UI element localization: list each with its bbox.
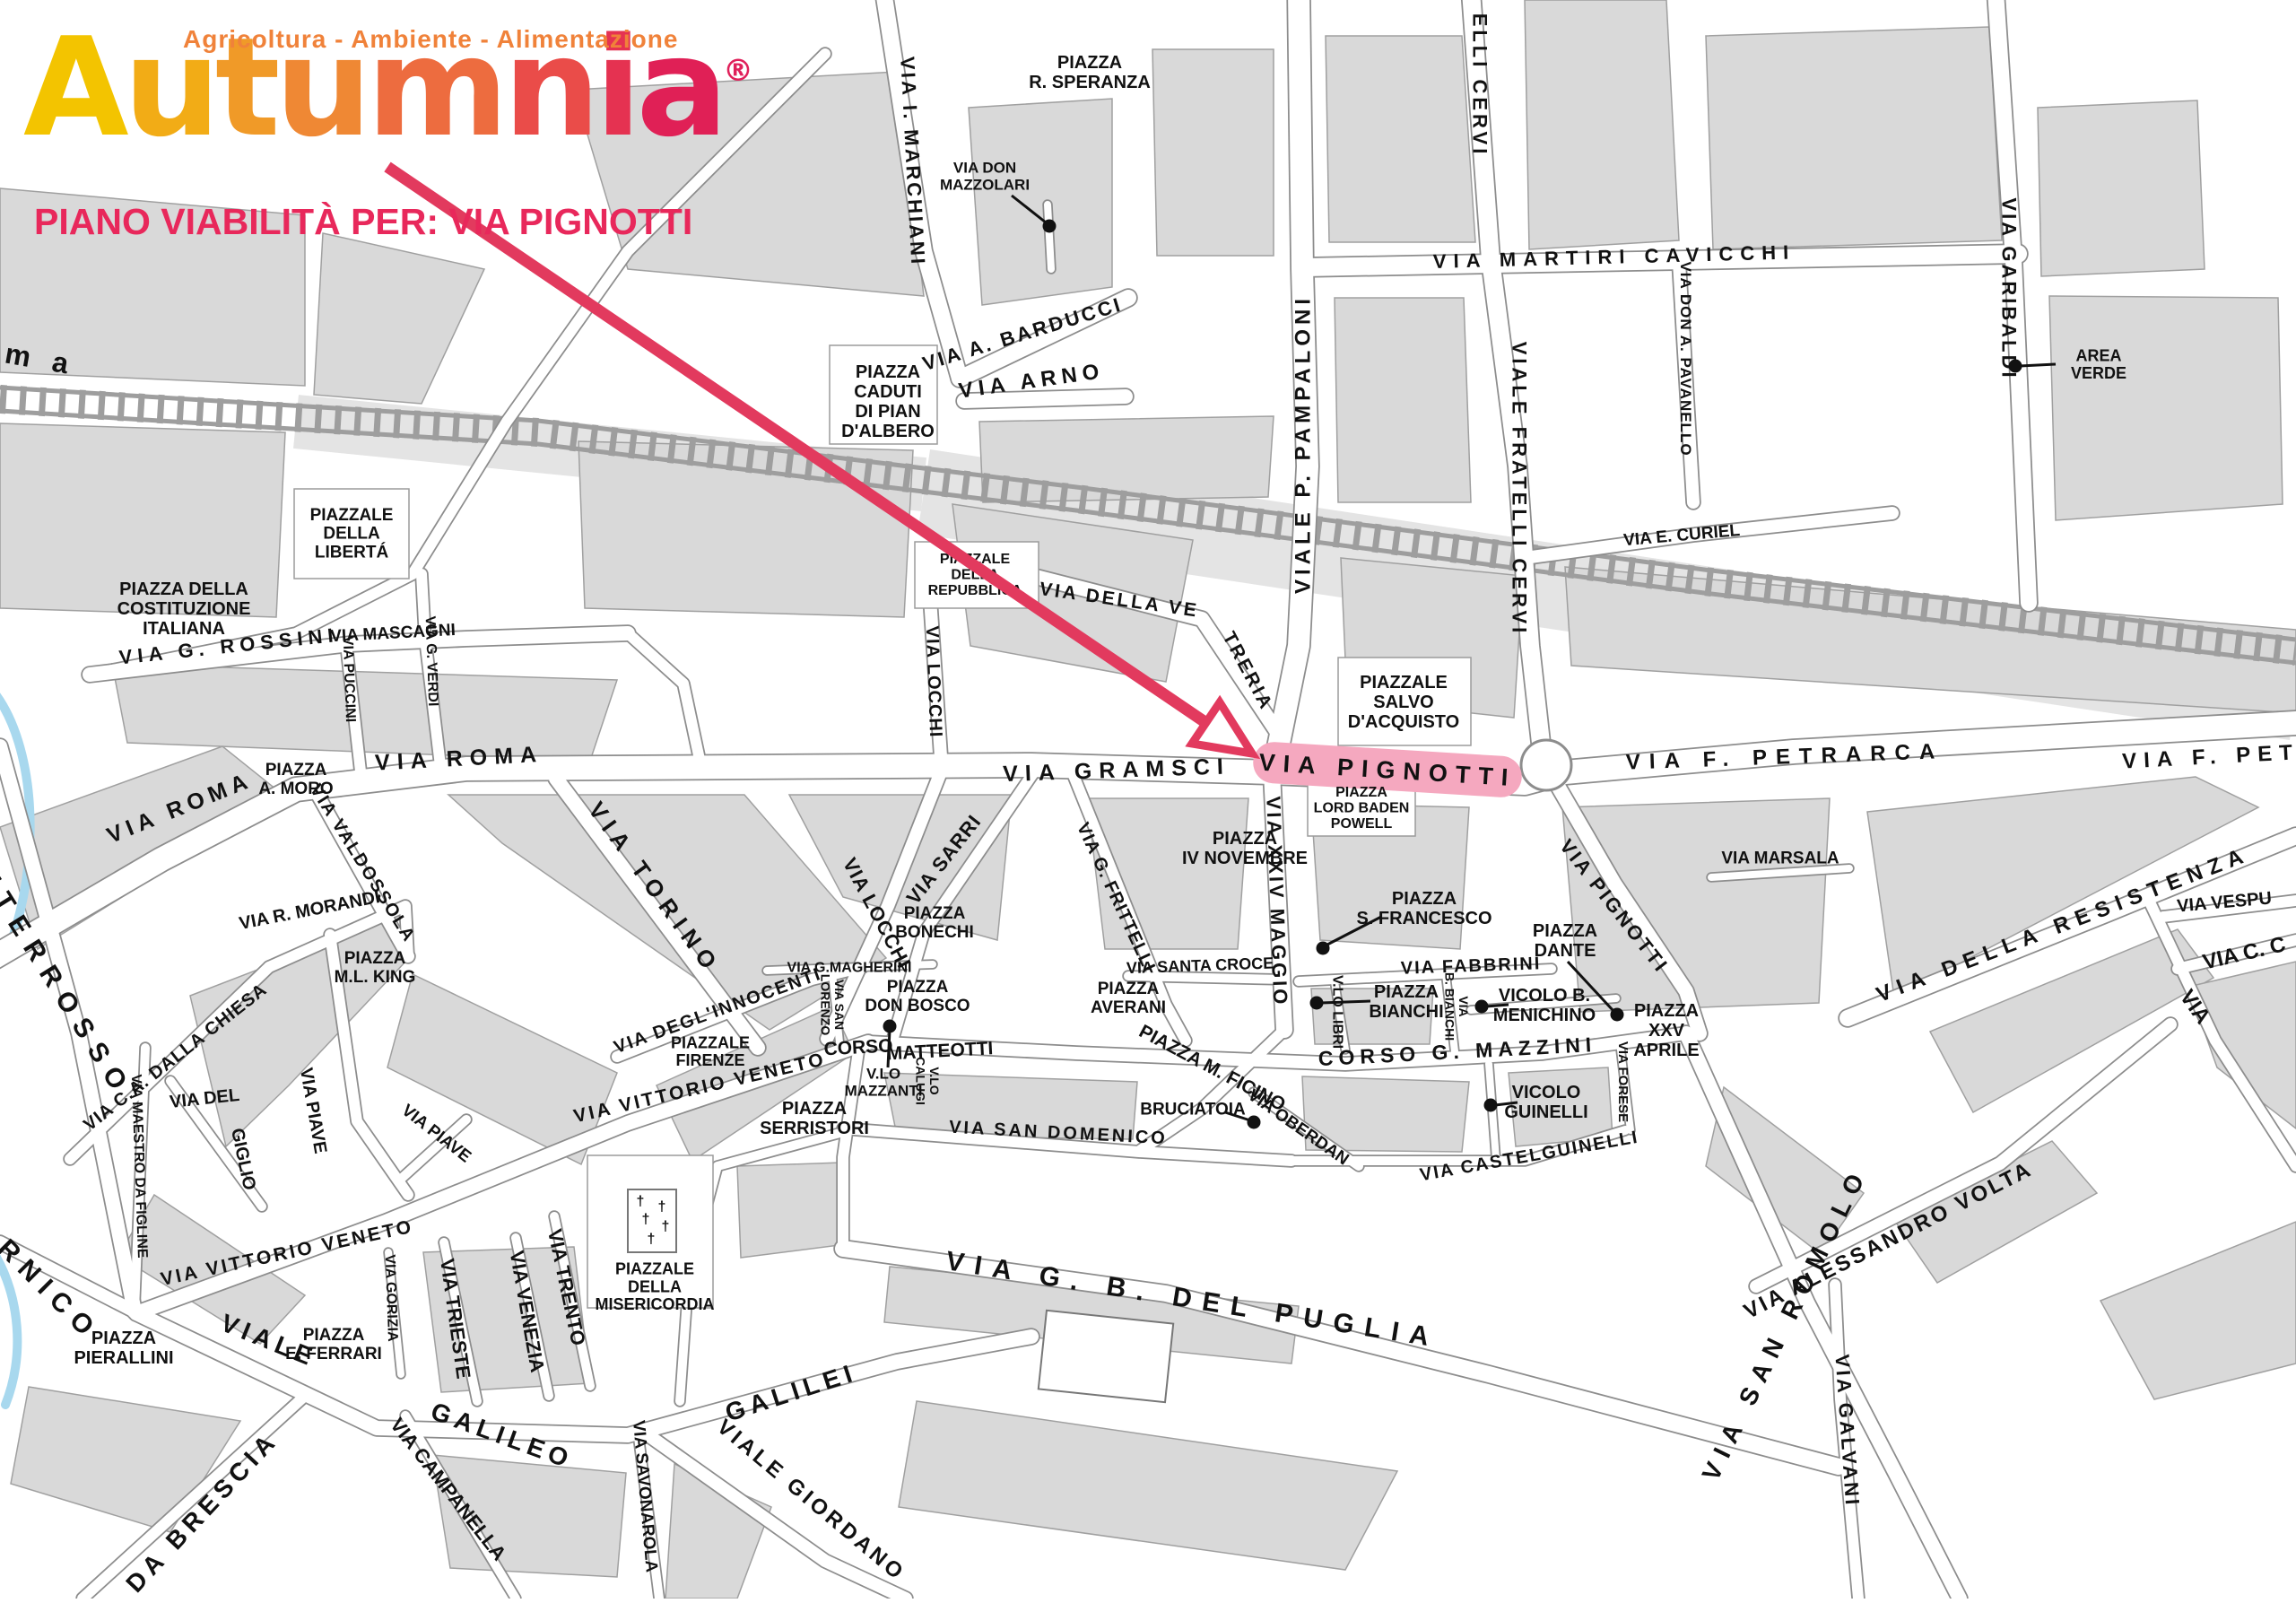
label-piazzale-firenze: PIAZZALEFIRENZE	[671, 1033, 750, 1069]
label-piazza-don-bosco: PIAZZADON BOSCO	[865, 978, 970, 1015]
label-text: VIALE P. PAMPALONI	[1291, 294, 1315, 594]
label-via-marsala: VIA MARSALA	[1721, 849, 1839, 868]
label-text: MATTEOTTI	[886, 1038, 994, 1064]
label-text: BRUCIATOIA	[1140, 1101, 1246, 1119]
logo-letter: A	[23, 8, 124, 167]
city-block	[2188, 962, 2296, 1128]
road	[1048, 205, 1051, 269]
label-text: PIAZZALEFIRENZE	[671, 1033, 750, 1069]
label-viale-p-pampaloni: VIALE P. PAMPALONI	[1291, 294, 1315, 594]
label-text: VIA G. VERDI	[422, 615, 441, 706]
label-via-piave: VIA PIAVE	[296, 1067, 330, 1155]
city-block	[1152, 49, 1274, 256]
label-via-don-mazzolari: VIA DONMAZZOLARI	[940, 160, 1030, 194]
label-piazza-m-l-king: PIAZZAM.L. KING	[335, 949, 416, 987]
label-corso: CORSO	[823, 1035, 893, 1059]
label-via-forese: VIA FORESE	[1615, 1041, 1631, 1122]
roundabout	[1521, 740, 1571, 790]
poi-dot	[1317, 942, 1330, 955]
page-title: PIANO VIABILITÀ PER: VIA PIGNOTTI	[34, 201, 692, 243]
cemetery-cross-icon: †	[648, 1232, 656, 1247]
label-text: PIAZZABONECHI	[895, 904, 974, 942]
label-text: VIA F. PET	[2122, 740, 2296, 773]
label-text: VIA PIAVE	[296, 1067, 330, 1155]
registered-mark: ®	[723, 53, 753, 89]
poi-dot	[2009, 360, 2022, 373]
label-bruciatoia: BRUCIATOIA	[1140, 1101, 1246, 1119]
label-text: VIA DON A. PAVANELLO	[1677, 261, 1694, 456]
label-matteotti: MATTEOTTI	[886, 1038, 994, 1064]
label-viale-fratelli-cervi: VIALE FRATELLI CERVI	[1508, 342, 1530, 637]
label-via-don-a-pavanello: VIA DON A. PAVANELLO	[1677, 261, 1694, 456]
label-v-lo-libri: V.LO LIBRI	[1329, 975, 1344, 1049]
label-via-locchi: VIA LOCCHI	[922, 625, 945, 738]
label-text: PIAZZADON BOSCO	[865, 978, 970, 1015]
city-block	[737, 1163, 841, 1258]
city-block	[2049, 296, 2283, 520]
label-text: VIA GORIZIA	[382, 1254, 400, 1342]
label-text: VIA GALVANI	[1831, 1354, 1864, 1508]
label-via-f-petrarca: VIA F. PETRARCA	[1625, 739, 1944, 774]
poi-leader	[1321, 1001, 1370, 1003]
city-block	[969, 99, 1112, 305]
city-block	[2038, 100, 2205, 276]
label-text: VIA PUCCINI	[340, 636, 358, 723]
poi-leader	[888, 1030, 890, 1067]
cemetery-cross-icon: †	[658, 1199, 666, 1215]
label-via-e-curiel: VIA E. CURIEL	[1622, 521, 1741, 550]
label-piazza-averani: PIAZZAAVERANI	[1091, 980, 1166, 1017]
poi-dot	[1611, 1008, 1624, 1022]
city-block	[2100, 1222, 2296, 1399]
label-via-b-bianchi: VIAB. BIANCHI	[1442, 972, 1470, 1041]
label-text: PIAZZAR. SPERANZA	[1029, 53, 1151, 92]
cemetery-cross-icon: †	[662, 1219, 670, 1234]
poi-leader	[1486, 1005, 1509, 1006]
label-text: VIA DONMAZZOLARI	[940, 160, 1030, 194]
city-block	[899, 1401, 1397, 1570]
label-text: PIAZZAAVERANI	[1091, 980, 1166, 1017]
label-text: VIA FORESE	[1615, 1041, 1631, 1122]
label-via-g-verdi: VIA G. VERDI	[422, 615, 441, 706]
label-text: PIAZZABIANCHI	[1369, 982, 1443, 1022]
poi-dot	[1043, 220, 1057, 233]
label-via-puccini: VIA PUCCINI	[340, 636, 358, 723]
label-text: GALILEI	[722, 1358, 861, 1427]
label-text: V.LO LIBRI	[1329, 975, 1344, 1049]
cemetery-cross-icon: †	[642, 1212, 650, 1227]
label-via-f-pet: VIA F. PET	[2122, 740, 2296, 773]
label-piazza-bianchi: PIAZZABIANCHI	[1369, 982, 1443, 1022]
cemetery-cross-icon: †	[637, 1194, 645, 1209]
pointer-arrow-head	[1192, 702, 1252, 754]
poi-dot	[1484, 1099, 1498, 1112]
city-block	[314, 233, 484, 404]
label-text: VIAB. BIANCHI	[1442, 972, 1470, 1041]
label-elli-cervi: ELLI CERVI	[1468, 13, 1491, 158]
label-text: VIA PIAVE	[398, 1101, 474, 1166]
poi-leader	[2020, 364, 2056, 366]
label-text: VIA GARIBALDI	[1997, 197, 2020, 379]
label-via-gorizia: VIA GORIZIA	[382, 1254, 400, 1342]
label-via-piave: VIA PIAVE	[398, 1101, 474, 1166]
label-text: ELLI CERVI	[1468, 13, 1491, 158]
poi-dot	[1475, 1000, 1489, 1014]
label-text: AREAVERDE	[2071, 346, 2126, 382]
label-piazza-r-speranza: PIAZZAR. SPERANZA	[1029, 53, 1151, 92]
building-footprint	[1039, 1311, 1173, 1402]
label-piazza-dante: PIAZZADANTE	[1533, 921, 1597, 961]
label-text: VIALE FRATELLI CERVI	[1508, 342, 1530, 637]
label-piazza-della-costituzione-italiana: PIAZZA DELLACOSTITUZIONEITALIANA	[117, 579, 251, 639]
label-text: PIAZZADANTE	[1533, 921, 1597, 961]
poi-dot	[883, 1020, 897, 1033]
label-text: VIA E. CURIEL	[1622, 521, 1741, 550]
label-galilei: GALILEI	[722, 1358, 861, 1427]
label-text: PIAZZA DELLACOSTITUZIONEITALIANA	[117, 579, 251, 639]
label-text: VIA F. PETRARCA	[1625, 739, 1944, 774]
label-text: CORSO	[823, 1035, 893, 1059]
label-text: VIA LOCCHI	[922, 625, 945, 738]
logo-tagline: Agricoltura - Ambiente - Alimentazione	[183, 25, 678, 54]
label-piazza-bonechi: PIAZZABONECHI	[895, 904, 974, 942]
label-text: PIAZZAM.L. KING	[335, 949, 416, 987]
label-area-verde: AREAVERDE	[2071, 346, 2126, 382]
city-block	[1326, 36, 1475, 242]
label-via-galvani: VIA GALVANI	[1831, 1354, 1864, 1508]
poi-dot	[1248, 1116, 1261, 1129]
label-text: VIA MARSALA	[1721, 849, 1839, 868]
city-block	[1525, 0, 1679, 249]
city-block	[1335, 298, 1471, 502]
poi-dot	[1310, 997, 1324, 1010]
label-via-garibaldi: VIA GARIBALDI	[1997, 197, 2020, 379]
city-block	[1706, 27, 2002, 249]
